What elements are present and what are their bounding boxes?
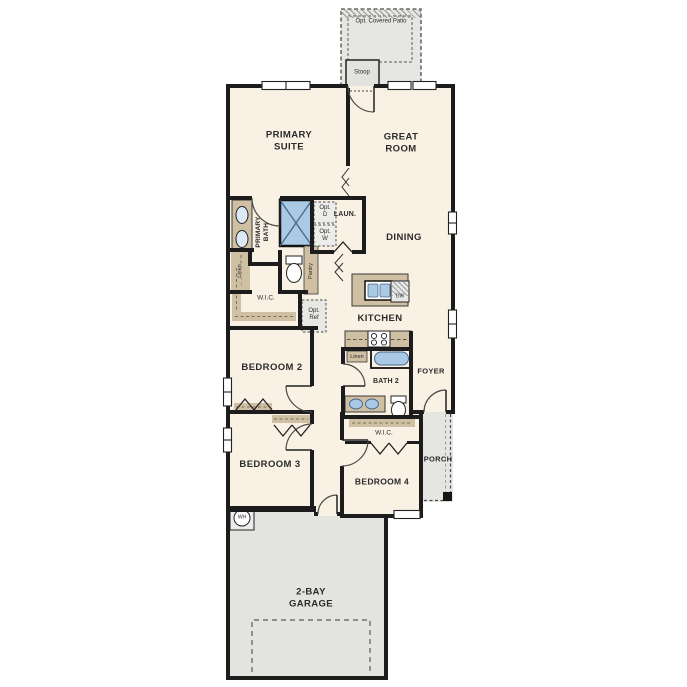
- toilet-primary-tank: [286, 256, 302, 264]
- primary-sink-2: [236, 231, 248, 248]
- primary-sink-1: [236, 207, 248, 224]
- floor-group: [230, 86, 451, 516]
- floor-plan-drawing: [0, 0, 687, 687]
- garage-group: [230, 506, 386, 678]
- water-heater-icon: [234, 510, 250, 526]
- linen-bath2-cabinet: [347, 351, 367, 362]
- stoop-pad: [346, 60, 379, 88]
- opt-dryer-box: [314, 202, 336, 223]
- floor-plan: Opt. Covered Patio Stoop PRIMARY SUITE G…: [0, 0, 687, 687]
- range: [368, 331, 390, 347]
- porch-group: [423, 412, 453, 502]
- patio-group: [341, 9, 421, 88]
- porch-post: [443, 492, 452, 501]
- dishwasher-box: [391, 281, 409, 302]
- toilet-primary-bowl: [287, 264, 302, 283]
- opt-washer-box: [314, 225, 336, 246]
